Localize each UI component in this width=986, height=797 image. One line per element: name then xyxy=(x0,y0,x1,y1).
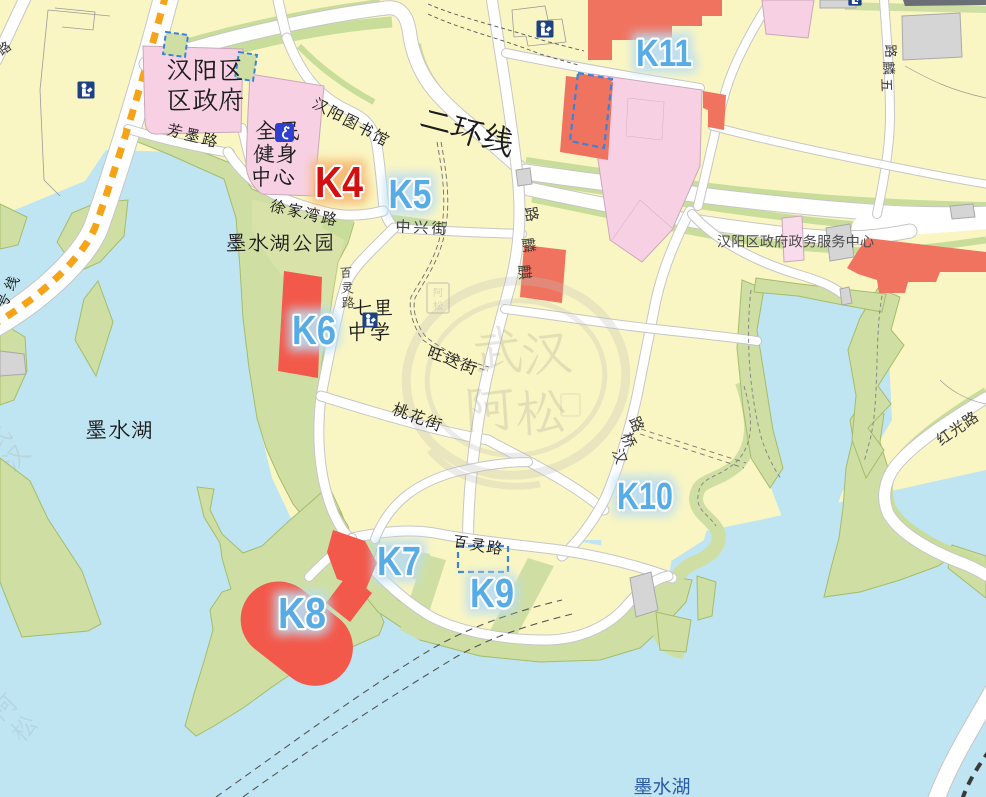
svg-text:K7: K7 xyxy=(377,538,421,584)
svg-text:K4: K4 xyxy=(315,158,363,207)
svg-text:K8: K8 xyxy=(278,589,326,638)
svg-text:K5: K5 xyxy=(389,171,432,217)
svg-text:K9: K9 xyxy=(470,570,514,616)
svg-text:K10: K10 xyxy=(617,476,673,518)
svg-text:K6: K6 xyxy=(292,307,336,353)
svg-text:K11: K11 xyxy=(636,33,692,75)
